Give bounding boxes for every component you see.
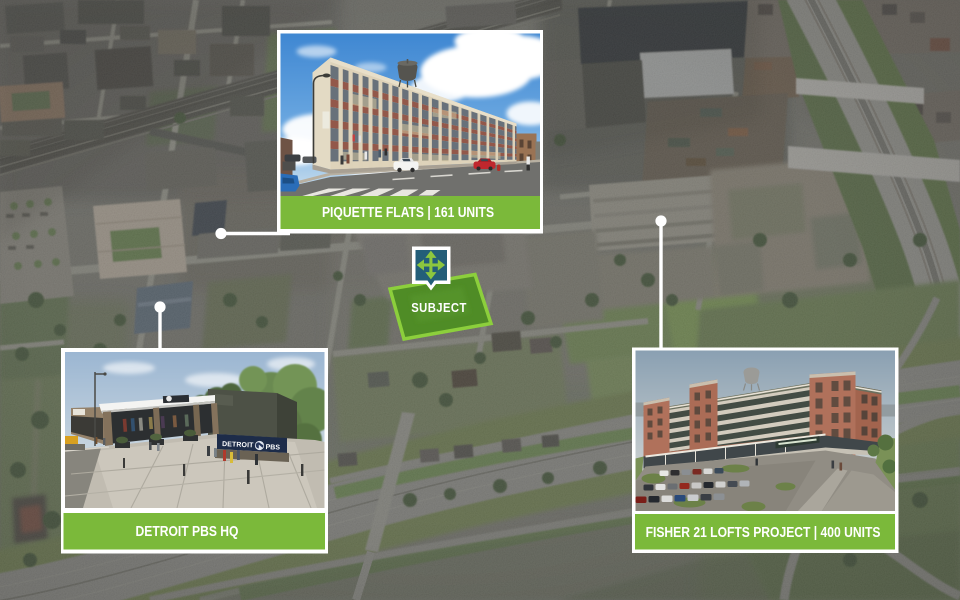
svg-text:PBS: PBS (265, 444, 280, 452)
svg-text:PIQUETTE FLATS | 161 UNITS: PIQUETTE FLATS | 161 UNITS (322, 204, 494, 220)
svg-text:SUBJECT: SUBJECT (411, 300, 467, 315)
svg-text:FISHER 21 LOFTS PROJECT | 400: FISHER 21 LOFTS PROJECT | 400 UNITS (646, 524, 881, 540)
svg-text:DETROIT PBS HQ: DETROIT PBS HQ (136, 523, 239, 539)
svg-text:DETROIT: DETROIT (222, 441, 254, 449)
